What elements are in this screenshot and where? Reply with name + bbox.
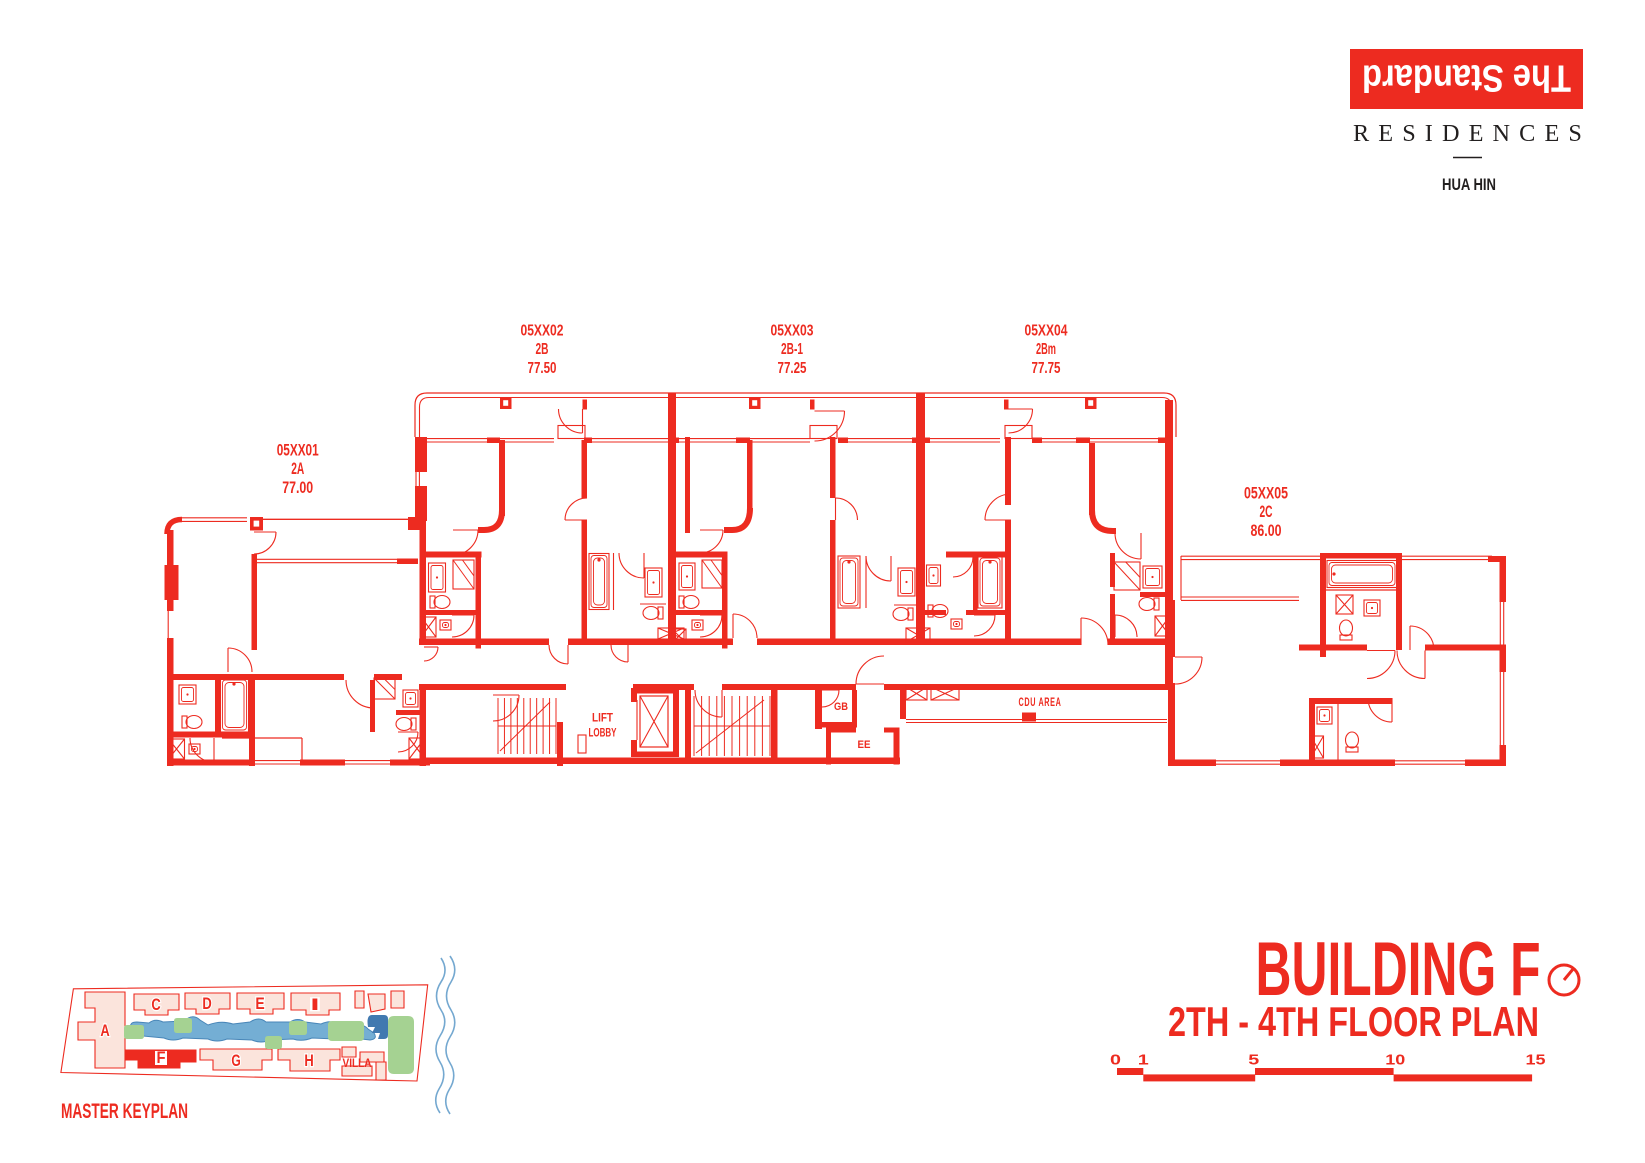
svg-text:EE: EE <box>858 739 871 751</box>
svg-text:0: 0 <box>1110 1053 1121 1069</box>
svg-text:H: H <box>304 1051 313 1070</box>
svg-text:E: E <box>255 994 264 1013</box>
svg-text:F: F <box>157 1048 166 1067</box>
svg-text:77.25: 77.25 <box>778 360 807 377</box>
svg-text:MASTER KEYPLAN: MASTER KEYPLAN <box>61 1100 188 1123</box>
svg-text:VILLA: VILLA <box>343 1058 372 1070</box>
svg-text:05XX03: 05XX03 <box>771 323 814 340</box>
svg-text:05XX05: 05XX05 <box>1244 484 1288 503</box>
svg-text:CDU AREA: CDU AREA <box>1019 697 1062 709</box>
svg-text:77.00: 77.00 <box>282 478 313 497</box>
svg-text:2Bm: 2Bm <box>1036 341 1056 358</box>
svg-text:HUA HIN: HUA HIN <box>1442 176 1496 194</box>
svg-text:D: D <box>202 994 211 1013</box>
svg-text:2TH - 4TH FLOOR PLAN: 2TH - 4TH FLOOR PLAN <box>1168 998 1539 1045</box>
svg-text:RESIDENCES: RESIDENCES <box>1353 121 1591 147</box>
svg-text:2A: 2A <box>291 459 304 478</box>
svg-text:77.50: 77.50 <box>528 360 557 377</box>
svg-text:05XX04: 05XX04 <box>1025 323 1068 340</box>
svg-text:1: 1 <box>1138 1053 1149 1069</box>
svg-text:5: 5 <box>1248 1053 1259 1069</box>
svg-text:A: A <box>100 1021 109 1040</box>
svg-text:86.00: 86.00 <box>1251 521 1282 540</box>
svg-text:15: 15 <box>1526 1053 1546 1069</box>
svg-text:77.75: 77.75 <box>1032 360 1061 377</box>
svg-text:G: G <box>231 1051 240 1070</box>
svg-text:LIFT: LIFT <box>592 711 614 725</box>
svg-text:05XX02: 05XX02 <box>521 323 564 340</box>
svg-text:10: 10 <box>1385 1053 1405 1069</box>
svg-text:2B-1: 2B-1 <box>781 341 803 358</box>
svg-text:2C: 2C <box>1260 502 1273 521</box>
svg-text:LOBBY: LOBBY <box>589 726 617 740</box>
svg-text:05XX01: 05XX01 <box>277 441 319 460</box>
svg-text:I: I <box>310 995 319 1014</box>
svg-text:The Standard: The Standard <box>1362 57 1571 99</box>
svg-text:C: C <box>151 995 160 1014</box>
svg-text:2B: 2B <box>536 341 549 358</box>
svg-text:GB: GB <box>834 701 848 713</box>
